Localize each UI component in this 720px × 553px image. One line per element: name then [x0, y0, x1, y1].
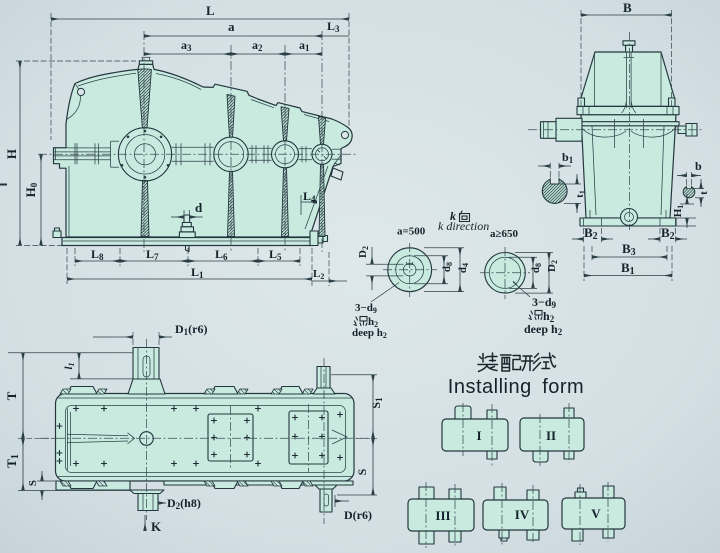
svg-text:deep h2: deep h2 [352, 327, 387, 340]
svg-text:a: a [228, 19, 235, 34]
svg-text:K: K [151, 519, 162, 534]
svg-text:IV: IV [515, 507, 530, 522]
svg-text:Installing form: Installing form [448, 376, 584, 398]
svg-text:b: b [695, 159, 702, 173]
svg-text:a=500: a=500 [397, 226, 426, 238]
svg-text:k direction: k direction [438, 219, 489, 233]
svg-text:II: II [546, 428, 556, 443]
svg-text:D2(h8): D2(h8) [167, 496, 201, 511]
svg-text:H: H [4, 149, 19, 159]
svg-text:D1(r6): D1(r6) [175, 322, 208, 337]
svg-text:a≥650: a≥650 [490, 228, 519, 240]
svg-text:t: t [698, 191, 710, 195]
svg-text:S: S [355, 468, 369, 475]
svg-text:I: I [476, 428, 481, 443]
svg-text:S: S [27, 480, 39, 486]
svg-text:III: III [435, 508, 450, 523]
svg-text:L: L [206, 3, 215, 18]
svg-text:d: d [195, 200, 203, 215]
svg-text:D(r6): D(r6) [344, 508, 372, 522]
svg-text:T: T [4, 391, 19, 400]
svg-text:B: B [623, 0, 632, 15]
svg-text:deep h2: deep h2 [524, 322, 563, 337]
svg-text:V: V [591, 506, 601, 521]
